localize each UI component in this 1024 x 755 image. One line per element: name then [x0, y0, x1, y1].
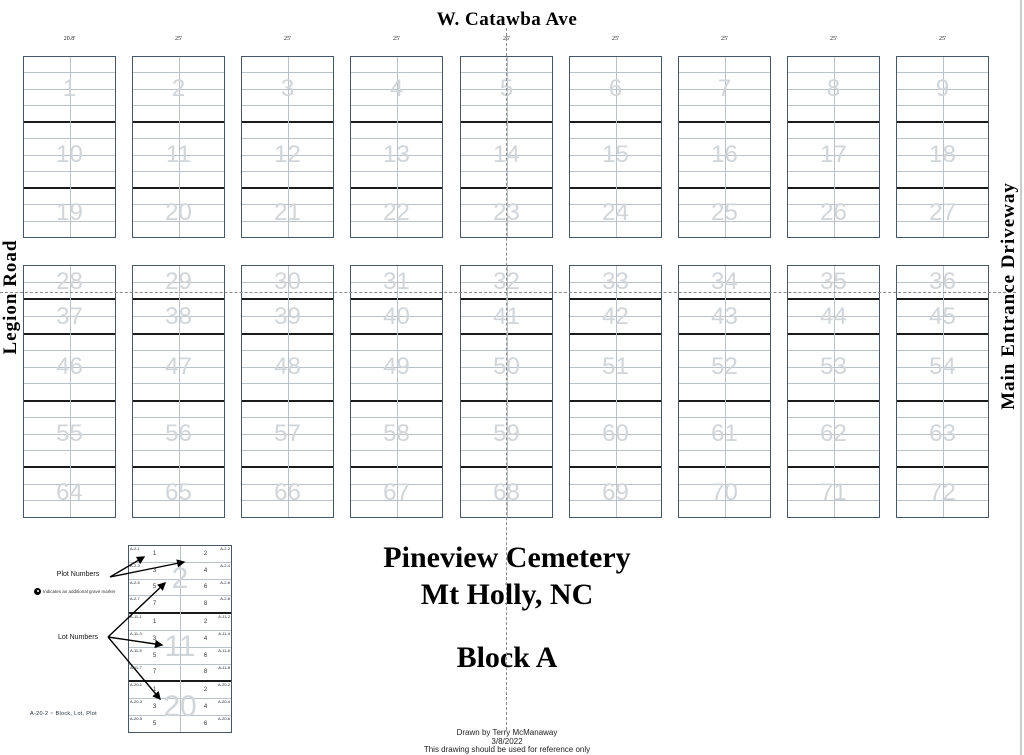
legend-plot-cell: 1A-2-1 [129, 546, 180, 562]
lot: 9 [897, 57, 988, 121]
lot: 70 [679, 466, 770, 517]
lot-number: 2 [133, 57, 224, 121]
lot: 11 [133, 121, 224, 187]
legend-plot-row: 5A-11-56A-11-6 [129, 647, 231, 664]
plot-code: A-20-6 [218, 716, 230, 721]
lot: 24 [570, 187, 661, 237]
legend-plot-row: 5A-20-56A-20-6 [129, 715, 231, 732]
lot: 67 [351, 466, 442, 517]
lot: 3 [242, 57, 333, 121]
lot-width-measurement: 25' [241, 36, 334, 42]
legend-plot-cell: 1A-11-1 [129, 614, 180, 630]
block-title: Block A [207, 641, 807, 675]
city-title: Mt Holly, NC [207, 578, 807, 612]
lot-block: 2837465564 [23, 265, 116, 518]
legend-lot: 1A-20-12A-20-23A-20-34A-20-45A-20-56A-20… [129, 680, 231, 732]
legend-plot-cell: 3A-11-3 [129, 631, 180, 647]
lot-number: 60 [570, 402, 661, 467]
lot-number: 54 [897, 335, 988, 400]
lot-block: 41322 [350, 56, 443, 238]
plot-code: A-20-2 [218, 682, 230, 687]
lot-number: 36 [897, 266, 988, 298]
plot-code: A-2-3 [130, 563, 140, 568]
lot: 29 [133, 266, 224, 298]
lot-block: 3140495867 [350, 265, 443, 518]
lot-width-measurement: 25' [787, 36, 880, 42]
lot-width-measurement: 25' [132, 36, 225, 42]
lot-block: 91827 [896, 56, 989, 238]
legend-plot-cell: 5A-11-5 [129, 648, 180, 664]
lot: 1 [24, 57, 115, 121]
lot-number: 48 [242, 335, 333, 400]
lot-number: 40 [351, 300, 442, 332]
legend-plot-cell: 3A-20-3 [129, 699, 180, 715]
lot-number: 21 [242, 189, 333, 237]
lot-number: 53 [788, 335, 879, 400]
lot: 8 [788, 57, 879, 121]
legend-plot-row: 1A-11-12A-11-2 [129, 614, 231, 630]
lot: 43 [679, 298, 770, 332]
plot-code: A-11-3 [130, 631, 142, 636]
lot: 53 [788, 333, 879, 400]
lot-number: 44 [788, 300, 879, 332]
lot: 40 [351, 298, 442, 332]
lot-block: 3342516069 [569, 265, 662, 518]
plot-code: A-20-4 [218, 699, 230, 704]
lot: 55 [24, 400, 115, 467]
lot-number: 9 [897, 57, 988, 121]
lot: 22 [351, 187, 442, 237]
plot-code: A-2-1 [130, 546, 140, 551]
lot-number: 27 [897, 189, 988, 237]
lot: 62 [788, 400, 879, 467]
lot-number: 28 [24, 266, 115, 298]
lot: 65 [133, 466, 224, 517]
lot-block: 3443526170 [678, 265, 771, 518]
lot: 57 [242, 400, 333, 467]
lot-block: 21120 [132, 56, 225, 238]
plot-code: A-2-7 [130, 596, 140, 601]
lot-number: 22 [351, 189, 442, 237]
lot-number: 46 [24, 335, 115, 400]
legend-plot-cell: 5A-2-5 [129, 580, 180, 596]
legend-plot-cell: 6A-20-6 [180, 716, 231, 732]
plot-code: A-2-5 [130, 580, 140, 585]
lot-number: 70 [679, 468, 770, 517]
legend-plot-cell: 8A-2-8 [180, 596, 231, 612]
lot-number: 16 [679, 123, 770, 187]
lot: 16 [679, 121, 770, 187]
lot: 13 [351, 121, 442, 187]
cemetery-title: Pineview Cemetery [207, 541, 807, 575]
lot-number: 56 [133, 402, 224, 467]
lot: 58 [351, 400, 442, 467]
legend-plot-cell: 2A-11-2 [180, 614, 231, 630]
footer-note: This drawing should be used for referenc… [257, 746, 757, 755]
legend-lot: 1A-2-12A-2-23A-2-34A-2-45A-2-56A-2-67A-2… [129, 546, 231, 612]
lot-number: 18 [897, 123, 988, 187]
lot-number: 31 [351, 266, 442, 298]
plot-code: A-11-7 [130, 665, 142, 670]
lot: 6 [570, 57, 661, 121]
legend-lot-numbers-label: Lot Numbers [48, 634, 108, 641]
legend-plot-cell: 2A-20-2 [180, 682, 231, 698]
lot: 34 [679, 266, 770, 298]
lot-width-measurement: 25' [350, 36, 443, 42]
legend-plot-cell: 4A-2-4 [180, 563, 231, 579]
lot: 39 [242, 298, 333, 332]
lot-block: 31221 [241, 56, 334, 238]
lot-number: 8 [788, 57, 879, 121]
lot-block: 3645546372 [896, 265, 989, 518]
lot-number: 51 [570, 335, 661, 400]
lot: 33 [570, 266, 661, 298]
lot-number: 30 [242, 266, 333, 298]
legend-plot-cell: 6A-2-6 [180, 580, 231, 596]
lot: 48 [242, 333, 333, 400]
legend-plot-row: 3A-11-34A-11-4 [129, 630, 231, 647]
legend-lot: 1A-11-12A-11-23A-11-34A-11-45A-11-56A-11… [129, 612, 231, 680]
lot-number: 17 [788, 123, 879, 187]
lot: 45 [897, 298, 988, 332]
legend-plot-cell: 3A-2-3 [129, 563, 180, 579]
lot: 49 [351, 333, 442, 400]
lot: 20 [133, 187, 224, 237]
plot-code: A-2-6 [220, 580, 230, 585]
legend-plot-cell: 7A-11-7 [129, 665, 180, 681]
plot-code: A-2-8 [220, 596, 230, 601]
lot-number: 33 [570, 266, 661, 298]
lot: 66 [242, 466, 333, 517]
lot-number: 64 [24, 468, 115, 517]
lot-number: 58 [351, 402, 442, 467]
lot-number: 3 [242, 57, 333, 121]
lot-block: 61524 [569, 56, 662, 238]
lot-block: 2938475665 [132, 265, 225, 518]
lot: 51 [570, 333, 661, 400]
center-dashed-line-horizontal [0, 292, 1016, 293]
legend-plot-row: 1A-20-12A-20-2 [129, 682, 231, 698]
footer: Drawn by Terry McManaway 3/8/2022 This d… [257, 729, 757, 755]
lot: 60 [570, 400, 661, 467]
lot: 36 [897, 266, 988, 298]
lot-number: 15 [570, 123, 661, 187]
legend-plot-row: 3A-20-34A-20-4 [129, 698, 231, 715]
lot: 19 [24, 187, 115, 237]
legend-plot-cell: 1A-20-1 [129, 682, 180, 698]
lot-block: 3544536271 [787, 265, 880, 518]
lot-width-measurement: 25' [678, 36, 771, 42]
lot: 54 [897, 333, 988, 400]
lot: 27 [897, 187, 988, 237]
street-label-legion-road: Legion Road [0, 240, 22, 355]
lot: 71 [788, 466, 879, 517]
lot: 4 [351, 57, 442, 121]
lot-number: 61 [679, 402, 770, 467]
lot: 31 [351, 266, 442, 298]
lot-number: 20 [133, 189, 224, 237]
legend-plot-cell: 4A-20-4 [180, 699, 231, 715]
lot-number: 43 [679, 300, 770, 332]
legend-code-note: A-20-2 ~ Block, Lot, Plot [30, 711, 97, 717]
lot: 72 [897, 466, 988, 517]
legend-plot-row: 5A-2-56A-2-6 [129, 579, 231, 596]
lot: 52 [679, 333, 770, 400]
lot: 69 [570, 466, 661, 517]
lot-number: 55 [24, 402, 115, 467]
lot-width-measurement: 20.8' [23, 36, 116, 42]
lot-number: 71 [788, 468, 879, 517]
lot-number: 13 [351, 123, 442, 187]
lot: 2 [133, 57, 224, 121]
legend-plot-cell: 4A-11-4 [180, 631, 231, 647]
lot: 63 [897, 400, 988, 467]
lot-number: 38 [133, 300, 224, 332]
lot-number: 47 [133, 335, 224, 400]
lot: 38 [133, 298, 224, 332]
lot-block: 3039485766 [241, 265, 334, 518]
lot-number: 11 [133, 123, 224, 187]
legend-plot-row: 7A-2-78A-2-8 [129, 595, 231, 612]
lot-block: 11019 [23, 56, 116, 238]
lot: 12 [242, 121, 333, 187]
lot-number: 57 [242, 402, 333, 467]
legend-plot-cell: 7A-2-7 [129, 596, 180, 612]
legend-marker-note-text: Indicates an additional grave marker [43, 589, 116, 594]
plot-code: A-20-5 [130, 716, 142, 721]
plot-code: A-2-2 [220, 546, 230, 551]
lot-number: 24 [570, 189, 661, 237]
plot-code: A-11-5 [130, 648, 142, 653]
lot-number: 66 [242, 468, 333, 517]
lot-number: 39 [242, 300, 333, 332]
lot: 18 [897, 121, 988, 187]
lot: 61 [679, 400, 770, 467]
lot-number: 35 [788, 266, 879, 298]
legend-plot-cell: 2A-2-2 [180, 546, 231, 562]
legend-example-block: 1A-2-12A-2-23A-2-34A-2-45A-2-56A-2-67A-2… [128, 545, 232, 733]
lot-number: 34 [679, 266, 770, 298]
lot: 44 [788, 298, 879, 332]
lot: 15 [570, 121, 661, 187]
plot-code: A-11-8 [218, 665, 230, 670]
lot: 42 [570, 298, 661, 332]
lot-block: 71625 [678, 56, 771, 238]
lot: 17 [788, 121, 879, 187]
lot-number: 1 [24, 57, 115, 121]
lot-number: 4 [351, 57, 442, 121]
lot: 30 [242, 266, 333, 298]
lot: 28 [24, 266, 115, 298]
lot: 21 [242, 187, 333, 237]
lot-number: 49 [351, 335, 442, 400]
plot-code: A-11-1 [130, 614, 142, 619]
lot: 26 [788, 187, 879, 237]
lot-number: 65 [133, 468, 224, 517]
grave-marker-dot-icon [34, 588, 41, 595]
lot-number: 19 [24, 189, 115, 237]
street-label-main-entrance-driveway: Main Entrance Driveway [998, 182, 1020, 410]
plot-code: A-20-1 [130, 682, 142, 687]
lot: 47 [133, 333, 224, 400]
plot-code: A-11-4 [218, 631, 230, 636]
lot-number: 6 [570, 57, 661, 121]
lot-number: 42 [570, 300, 661, 332]
legend-plot-row: 7A-11-78A-11-8 [129, 664, 231, 681]
legend-marker-note: Indicates an additional grave marker [34, 588, 116, 595]
lot-number: 26 [788, 189, 879, 237]
street-label-w-catawba-ave: W. Catawba Ave [0, 9, 1014, 31]
legend-plot-cell: 6A-11-6 [180, 648, 231, 664]
center-dashed-line-vertical [506, 28, 507, 730]
lot-number: 12 [242, 123, 333, 187]
lot: 37 [24, 298, 115, 332]
legend-plot-cell: 8A-11-8 [180, 665, 231, 681]
lot-block: 81726 [787, 56, 880, 238]
lot-number: 67 [351, 468, 442, 517]
page-right-edge [1020, 0, 1022, 755]
legend-plot-row: 3A-2-34A-2-4 [129, 562, 231, 579]
lot: 64 [24, 466, 115, 517]
lot-number: 63 [897, 402, 988, 467]
plot-code: A-20-3 [130, 699, 142, 704]
plot-code: A-11-2 [218, 614, 230, 619]
lot-number: 69 [570, 468, 661, 517]
lot: 56 [133, 400, 224, 467]
lot-number: 62 [788, 402, 879, 467]
lot-number: 25 [679, 189, 770, 237]
lot-number: 7 [679, 57, 770, 121]
lot: 35 [788, 266, 879, 298]
lot-width-measurement: 25' [896, 36, 989, 42]
lot-width-measurement: 25' [569, 36, 662, 42]
legend-plot-numbers-label: Plot Numbers [48, 571, 108, 578]
lot-number: 37 [24, 300, 115, 332]
lot-number: 72 [897, 468, 988, 517]
lot-number: 45 [897, 300, 988, 332]
lot: 25 [679, 187, 770, 237]
lot-number: 29 [133, 266, 224, 298]
legend-plot-row: 1A-2-12A-2-2 [129, 546, 231, 562]
lot-number: 52 [679, 335, 770, 400]
lot: 46 [24, 333, 115, 400]
plot-code: A-11-6 [218, 648, 230, 653]
lot-number: 10 [24, 123, 115, 187]
lot: 10 [24, 121, 115, 187]
legend-plot-cell: 5A-20-5 [129, 716, 180, 732]
plot-code: A-2-4 [220, 563, 230, 568]
lot: 7 [679, 57, 770, 121]
